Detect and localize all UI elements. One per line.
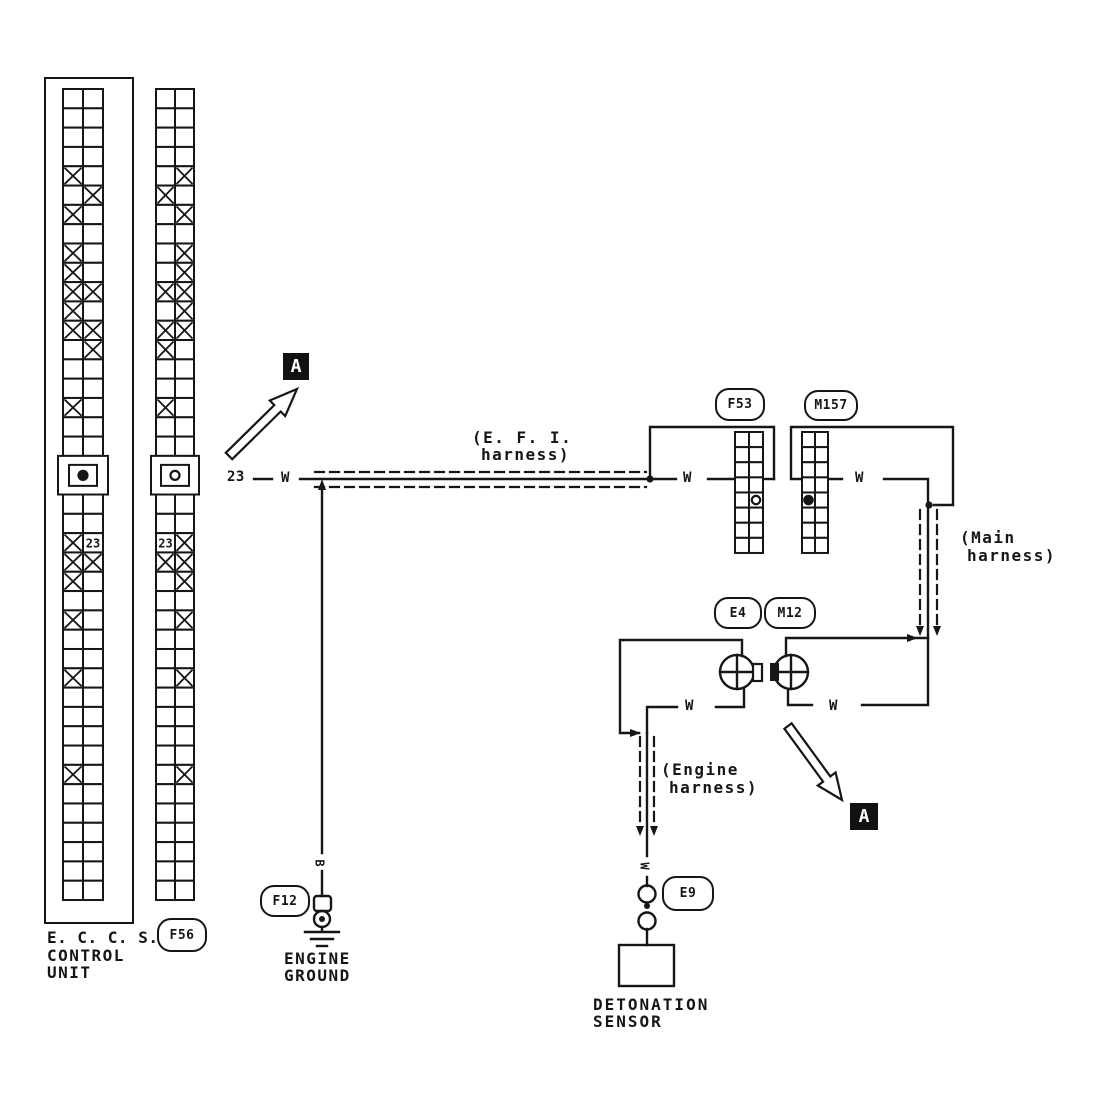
earth-ground-icon: [305, 932, 339, 946]
efi-harness-label-line2: harness): [481, 445, 570, 464]
e9-bullet-connectors: [639, 886, 656, 930]
connector-label-f53: F53: [715, 388, 765, 421]
engine-ground-caption-line2: GROUND: [284, 966, 351, 985]
eccs-pin-grid: 23: [53, 81, 117, 909]
connector-label-f56: F56: [157, 918, 207, 952]
f12-ground-terminal: [314, 896, 331, 927]
wiring-diagram-page: 23 23 A A F53 M157 E4 M12 F12 E9 F56 23 …: [0, 0, 1114, 1110]
pin-23-wire-label: 23: [227, 469, 245, 485]
connector-label-e9: E9: [662, 876, 714, 911]
harness-boundary-dashes: [315, 472, 937, 828]
svg-text:23: 23: [86, 536, 100, 550]
connector-label-f12: F12: [260, 885, 310, 917]
eccs-caption-line3: UNIT: [47, 963, 92, 982]
wire-color-w-m12: W: [829, 698, 838, 714]
wire-color-w-efi: W: [281, 470, 290, 486]
wire-color-w-m157: W: [855, 470, 864, 486]
m12-connector-symbol: [770, 655, 808, 689]
e4-connector-symbol: [720, 655, 762, 689]
engine-harness-label-line2: harness): [669, 778, 758, 797]
main-harness-label-line2: harness): [967, 546, 1056, 565]
section-a-arrow-down: [784, 723, 842, 800]
eccs-caption-line1: E. C. C. S.: [47, 928, 158, 947]
connector-label-m12: M12: [764, 597, 816, 629]
section-marker-a-top: A: [283, 353, 309, 380]
svg-text:23: 23: [158, 536, 172, 550]
wire-paths: [254, 427, 953, 945]
detonation-sensor-caption-line2: SENSOR: [593, 1012, 663, 1031]
detonation-sensor-box: [619, 945, 674, 986]
wire-color-b-ground: B: [313, 859, 327, 866]
m157-pin-grid: [798, 427, 836, 559]
arrowheads: [318, 479, 941, 836]
f53-pin-grid: [731, 427, 769, 559]
section-a-arrow-up: [226, 389, 297, 459]
wire-color-w-e4: W: [685, 698, 694, 714]
f56-pin-grid: 23: [146, 81, 210, 909]
wire-color-w-f53: W: [683, 470, 692, 486]
connector-label-e4: E4: [714, 597, 762, 629]
engine-harness-label-line1: (Engine: [661, 760, 739, 779]
wire-color-w-engine-harness: W: [638, 862, 652, 869]
section-marker-a-bottom: A: [850, 803, 878, 830]
connector-label-m157: M157: [804, 390, 858, 421]
main-harness-label-line1: (Main: [960, 528, 1016, 547]
